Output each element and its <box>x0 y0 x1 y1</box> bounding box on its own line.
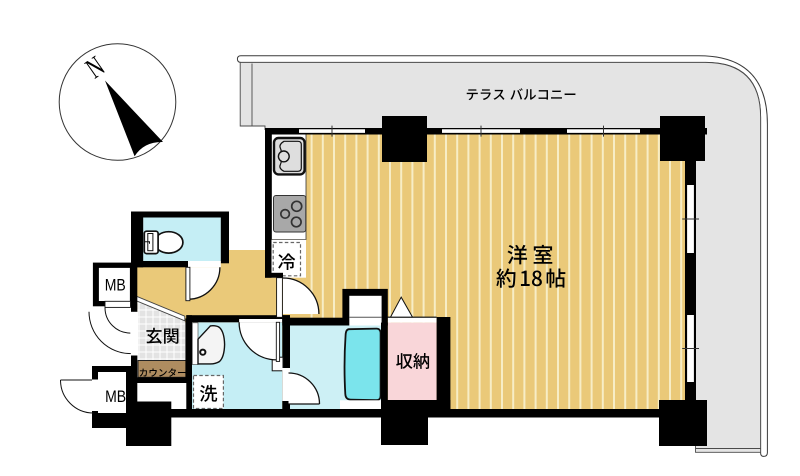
svg-text:MB: MB <box>105 276 126 294</box>
svg-text:MB: MB <box>105 388 126 406</box>
